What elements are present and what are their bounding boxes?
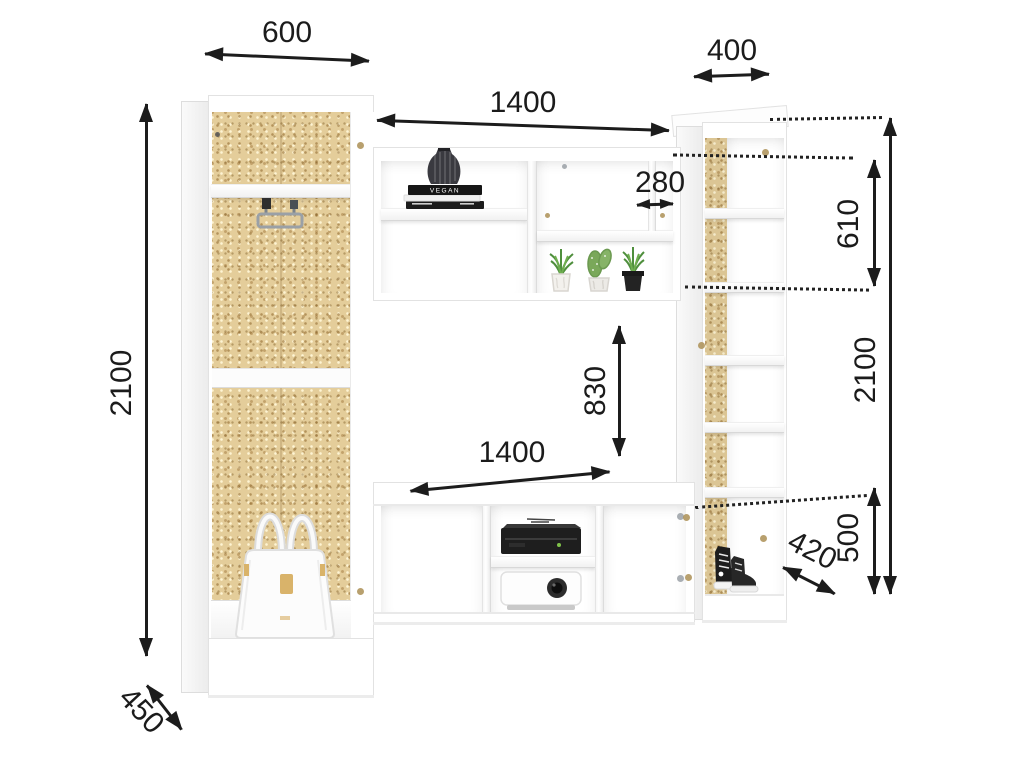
handbag — [228, 490, 340, 638]
arrowhead — [139, 103, 153, 122]
dim-label-right-bottom-section: 500 — [832, 478, 866, 598]
right-column-shelf — [705, 487, 784, 498]
left-wardrobe-plinth — [208, 638, 374, 696]
hinge-mark — [698, 342, 705, 349]
arrowhead — [612, 325, 626, 344]
hinge-mark — [685, 574, 692, 581]
dim-label-shelf-width: 280 — [628, 166, 692, 200]
top-unit-left-shelf — [381, 208, 527, 221]
left-wardrobe-side-panel — [181, 101, 209, 693]
sneakers — [704, 542, 760, 594]
book-spine-text: VEGAN — [430, 188, 460, 195]
dim-label-left-width: 600 — [207, 16, 367, 50]
shelf-pin — [562, 164, 567, 169]
bench-divider — [482, 506, 491, 612]
floor-shadow — [208, 695, 374, 698]
arrowhead — [883, 576, 897, 595]
dim-label-right-width: 400 — [692, 34, 772, 68]
av-receiver — [497, 518, 585, 556]
hinge-mark — [357, 142, 364, 149]
bench-divider — [595, 506, 604, 612]
arrowhead — [591, 464, 611, 480]
arrowhead — [409, 482, 429, 498]
wardrobe-back-rail — [212, 368, 350, 388]
dim-label-right-top-section: 610 — [832, 164, 866, 284]
dim-label-left-height: 2100 — [105, 323, 139, 443]
right-column-shelf — [705, 208, 784, 219]
dim-label-niche-width: 1400 — [432, 436, 592, 470]
arrowhead — [139, 638, 153, 657]
arrowhead — [867, 576, 881, 595]
dim-label-right-height: 2100 — [849, 310, 883, 430]
shelf-pin — [545, 213, 550, 218]
arrowhead — [612, 438, 626, 457]
dim-label-niche-height: 830 — [579, 331, 613, 451]
shelf-pin — [660, 213, 665, 218]
floor-shadow — [702, 620, 787, 623]
arrowhead — [751, 67, 770, 82]
arrowhead — [376, 113, 395, 128]
projector — [499, 570, 583, 612]
dotted-line-top — [770, 116, 882, 121]
arrowhead — [867, 159, 881, 178]
dim-arrow-left-width — [205, 52, 369, 62]
vase — [424, 148, 464, 186]
cactus — [582, 244, 614, 292]
hinge-mark — [357, 588, 364, 595]
left-wardrobe-shelf — [211, 184, 351, 198]
grass-plant-black-pot — [618, 246, 648, 292]
bench-floor-edge — [373, 612, 695, 614]
hanger-bracket — [250, 198, 310, 238]
book-stack: VEGAN — [402, 184, 486, 209]
arrowhead — [351, 53, 371, 68]
dim-arrow-right-width — [694, 73, 769, 79]
furniture-dimension-diagram: VEGAN — [0, 0, 1024, 768]
arrowhead — [693, 69, 712, 84]
dim-arrow-niche-height — [618, 326, 621, 456]
bench-left-compartment — [381, 506, 482, 612]
shelf-pin — [215, 132, 220, 137]
dim-arrow-left-height — [145, 104, 148, 656]
arrowhead — [867, 268, 881, 287]
arrowhead — [636, 199, 650, 209]
dim-arrow-right-height — [889, 118, 892, 594]
top-unit-middle-shelf — [537, 230, 673, 242]
right-column-shelf — [705, 422, 784, 433]
arrowhead — [883, 117, 897, 136]
arrowhead — [651, 122, 670, 137]
dim-arrow-shelf-width — [637, 202, 673, 206]
arrowhead — [867, 487, 881, 506]
dim-arrow-top-width — [377, 119, 669, 132]
right-column-interior — [727, 138, 784, 594]
hinge-mark — [683, 514, 690, 521]
right-column-cork-back — [705, 138, 727, 594]
floor-shadow — [373, 622, 695, 625]
bench-middle-shelf — [491, 556, 595, 568]
hinge-mark — [677, 575, 684, 582]
right-column-shelf — [705, 355, 784, 366]
right-column-floor-edge — [705, 594, 784, 596]
hinge-mark — [760, 535, 767, 542]
dim-label-top-width: 1400 — [443, 86, 603, 120]
grass-plant-white-pot — [546, 248, 576, 292]
left-wardrobe-right-inner-panel — [350, 112, 375, 600]
dim-arrow-right-bottom-section — [873, 488, 876, 594]
dim-arrow-right-top-section — [873, 160, 876, 286]
bench-right-compartment — [604, 506, 686, 612]
top-unit-divider — [527, 161, 537, 293]
